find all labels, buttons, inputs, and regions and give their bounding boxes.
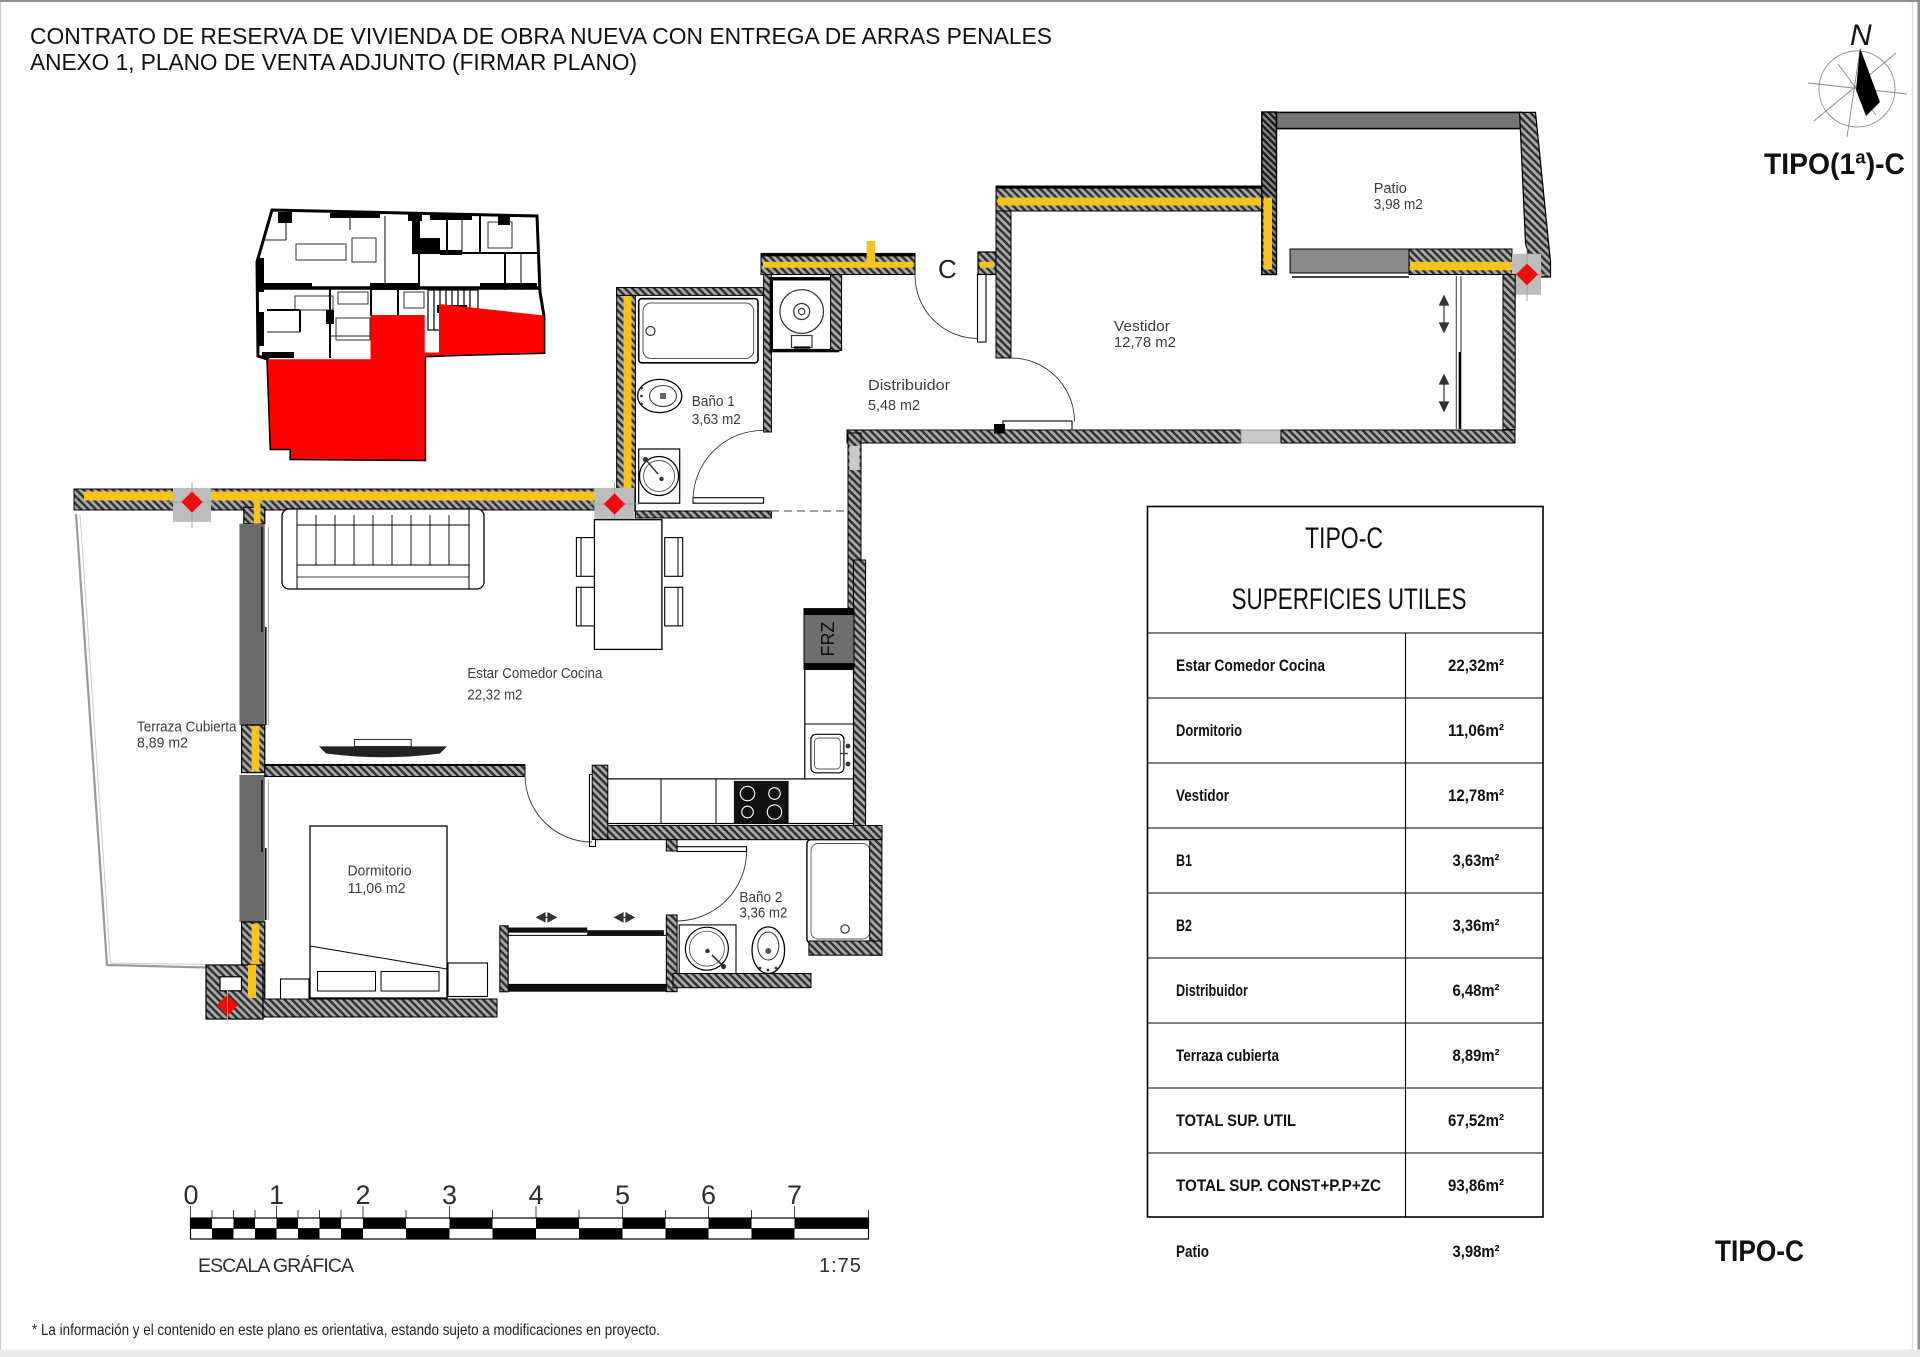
svg-text:3,36m²: 3,36m² bbox=[1453, 917, 1500, 935]
svg-text:3,63m²: 3,63m² bbox=[1453, 852, 1500, 870]
svg-text:TOTAL SUP. CONST+P.P+ZC: TOTAL SUP. CONST+P.P+ZC bbox=[1176, 1177, 1381, 1195]
svg-text:22,32 m2: 22,32 m2 bbox=[467, 687, 522, 704]
svg-text:Dormitorio: Dormitorio bbox=[1176, 722, 1242, 740]
svg-text:1:75: 1:75 bbox=[819, 1255, 862, 1277]
svg-text:TOTAL SUP. UTIL: TOTAL SUP. UTIL bbox=[1176, 1112, 1296, 1130]
svg-text:TIPO-C: TIPO-C bbox=[1715, 1235, 1804, 1268]
svg-text:11,06m²: 11,06m² bbox=[1448, 722, 1504, 740]
svg-text:TIPO-C: TIPO-C bbox=[1305, 522, 1383, 555]
svg-text:B2: B2 bbox=[1176, 917, 1192, 935]
svg-text:3,63 m2: 3,63 m2 bbox=[692, 411, 741, 428]
svg-text:Baño 1: Baño 1 bbox=[692, 393, 735, 410]
svg-text:93,86m²: 93,86m² bbox=[1448, 1177, 1504, 1195]
svg-text:Distribuidor: Distribuidor bbox=[868, 377, 950, 394]
svg-text:Estar Comedor Cocina: Estar Comedor Cocina bbox=[1176, 657, 1326, 675]
svg-text:Patio: Patio bbox=[1176, 1243, 1209, 1261]
svg-text:1: 1 bbox=[269, 1180, 284, 1210]
svg-text:N: N bbox=[1850, 19, 1872, 52]
svg-text:3,98m²: 3,98m² bbox=[1453, 1243, 1500, 1261]
svg-text:ESCALA GRÁFICA: ESCALA GRÁFICA bbox=[198, 1254, 354, 1277]
svg-text:3,36 m2: 3,36 m2 bbox=[739, 905, 787, 922]
svg-text:3: 3 bbox=[442, 1180, 457, 1210]
svg-text:Terraza cubierta: Terraza cubierta bbox=[1176, 1047, 1280, 1065]
svg-text:CONTRATO DE RESERVA DE VIVIEND: CONTRATO DE RESERVA DE VIVIENDA DE OBRA … bbox=[30, 23, 1052, 49]
svg-text:7: 7 bbox=[787, 1180, 802, 1210]
svg-text:8,89m²: 8,89m² bbox=[1453, 1047, 1500, 1065]
svg-text:0: 0 bbox=[183, 1180, 198, 1210]
svg-text:6: 6 bbox=[701, 1180, 716, 1210]
svg-text:22,32m²: 22,32m² bbox=[1448, 657, 1504, 675]
svg-text:Terraza Cubierta: Terraza Cubierta bbox=[137, 719, 237, 736]
svg-text:12,78m²: 12,78m² bbox=[1448, 787, 1504, 805]
svg-text:SUPERFICIES UTILES: SUPERFICIES UTILES bbox=[1232, 583, 1467, 616]
svg-text:5,48 m2: 5,48 m2 bbox=[868, 397, 920, 414]
svg-text:67,52m²: 67,52m² bbox=[1448, 1112, 1504, 1130]
svg-text:* La información y el contenid: * La información y el contenido en este … bbox=[32, 1322, 660, 1339]
svg-text:TIPO(1ª)-C: TIPO(1ª)-C bbox=[1764, 148, 1905, 181]
svg-text:8,89 m2: 8,89 m2 bbox=[137, 735, 188, 752]
svg-text:4: 4 bbox=[528, 1180, 543, 1210]
svg-text:Patio: Patio bbox=[1374, 180, 1407, 197]
svg-text:Distribuidor: Distribuidor bbox=[1176, 982, 1248, 1000]
svg-text:FRZ: FRZ bbox=[818, 622, 838, 657]
svg-text:3,98 m2: 3,98 m2 bbox=[1374, 196, 1423, 213]
svg-text:Vestidor: Vestidor bbox=[1114, 318, 1170, 335]
svg-text:11,06 m2: 11,06 m2 bbox=[348, 880, 406, 897]
svg-text:6,48m²: 6,48m² bbox=[1453, 982, 1500, 1000]
svg-text:Estar Comedor Cocina: Estar Comedor Cocina bbox=[467, 665, 603, 682]
svg-text:ANEXO 1, PLANO DE VENTA ADJUNT: ANEXO 1, PLANO DE VENTA ADJUNTO (FIRMAR … bbox=[30, 49, 637, 75]
svg-text:C: C bbox=[938, 254, 957, 284]
svg-text:Dormitorio: Dormitorio bbox=[348, 863, 412, 880]
svg-text:Vestidor: Vestidor bbox=[1176, 787, 1229, 805]
svg-text:5: 5 bbox=[615, 1180, 630, 1210]
svg-text:12,78 m2: 12,78 m2 bbox=[1114, 334, 1176, 351]
svg-text:Baño 2: Baño 2 bbox=[739, 889, 782, 906]
svg-text:B1: B1 bbox=[1176, 852, 1192, 870]
svg-text:2: 2 bbox=[355, 1180, 370, 1210]
